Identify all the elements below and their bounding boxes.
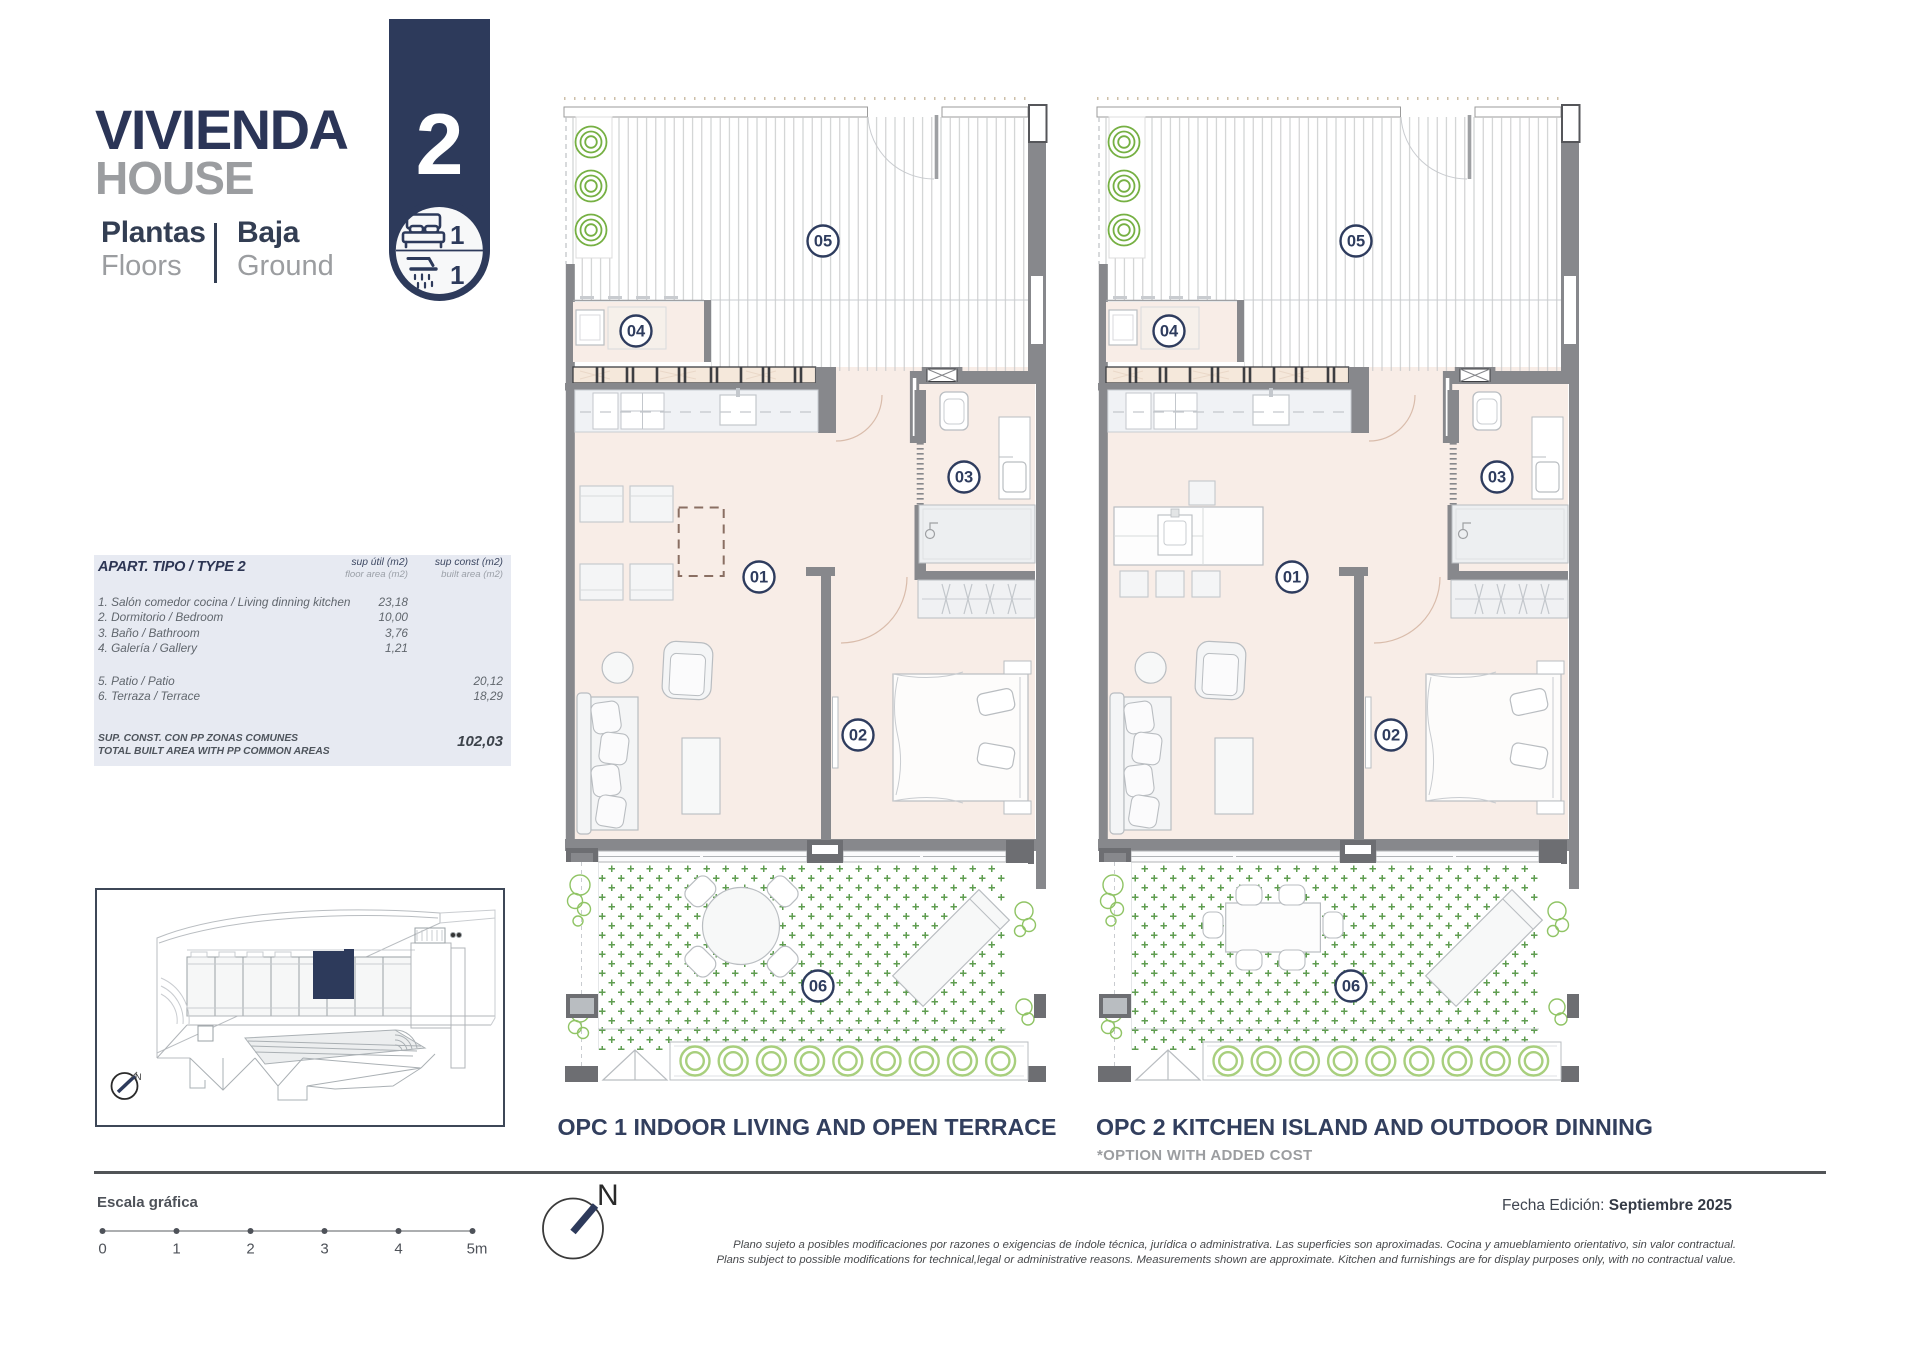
svg-text:4: 4 [394,1241,402,1258]
svg-text:N: N [135,1072,142,1082]
svg-text:5m: 5m [467,1241,488,1258]
svg-text:2: 2 [416,97,464,193]
svg-text:3: 3 [320,1241,328,1258]
svg-text:1: 1 [172,1241,180,1258]
svg-text:0: 0 [98,1241,106,1258]
svg-text:2: 2 [246,1241,254,1258]
svg-text:1: 1 [450,260,464,290]
svg-text:N: N [597,1180,619,1212]
svg-text:1: 1 [450,220,464,250]
